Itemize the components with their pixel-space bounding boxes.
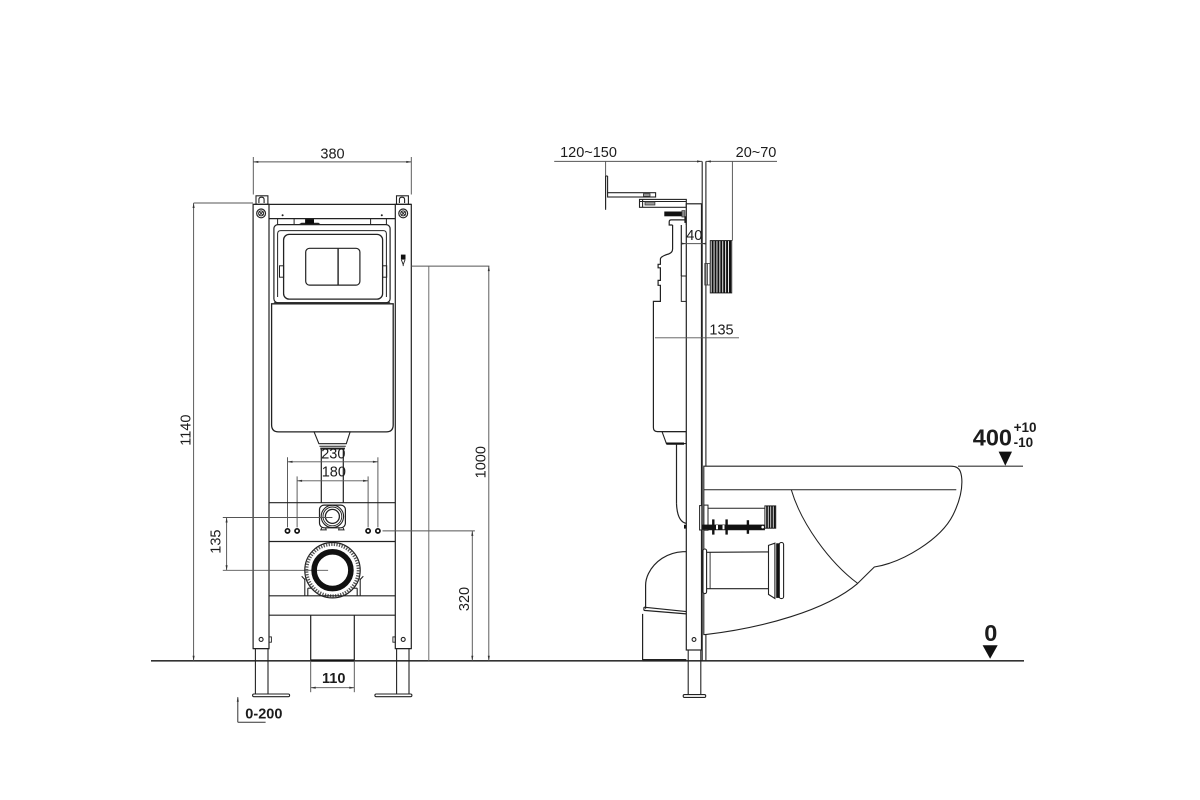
svg-text:120~150: 120~150	[560, 145, 617, 161]
svg-text:40: 40	[686, 228, 702, 244]
svg-text:+10: +10	[1014, 420, 1037, 435]
svg-text:1000: 1000	[473, 446, 489, 478]
svg-text:380: 380	[320, 147, 344, 163]
svg-text:1140: 1140	[178, 415, 194, 446]
svg-text:110: 110	[322, 671, 345, 687]
svg-text:135: 135	[709, 323, 733, 339]
svg-text:135: 135	[208, 529, 224, 553]
svg-text:400: 400	[973, 424, 1012, 450]
svg-text:0-200: 0-200	[245, 706, 282, 722]
svg-text:-10: -10	[1014, 435, 1034, 450]
svg-text:320: 320	[457, 587, 473, 611]
svg-text:20~70: 20~70	[736, 145, 777, 161]
svg-text:180: 180	[322, 464, 346, 480]
svg-text:230: 230	[321, 446, 345, 462]
svg-text:0: 0	[984, 620, 997, 646]
